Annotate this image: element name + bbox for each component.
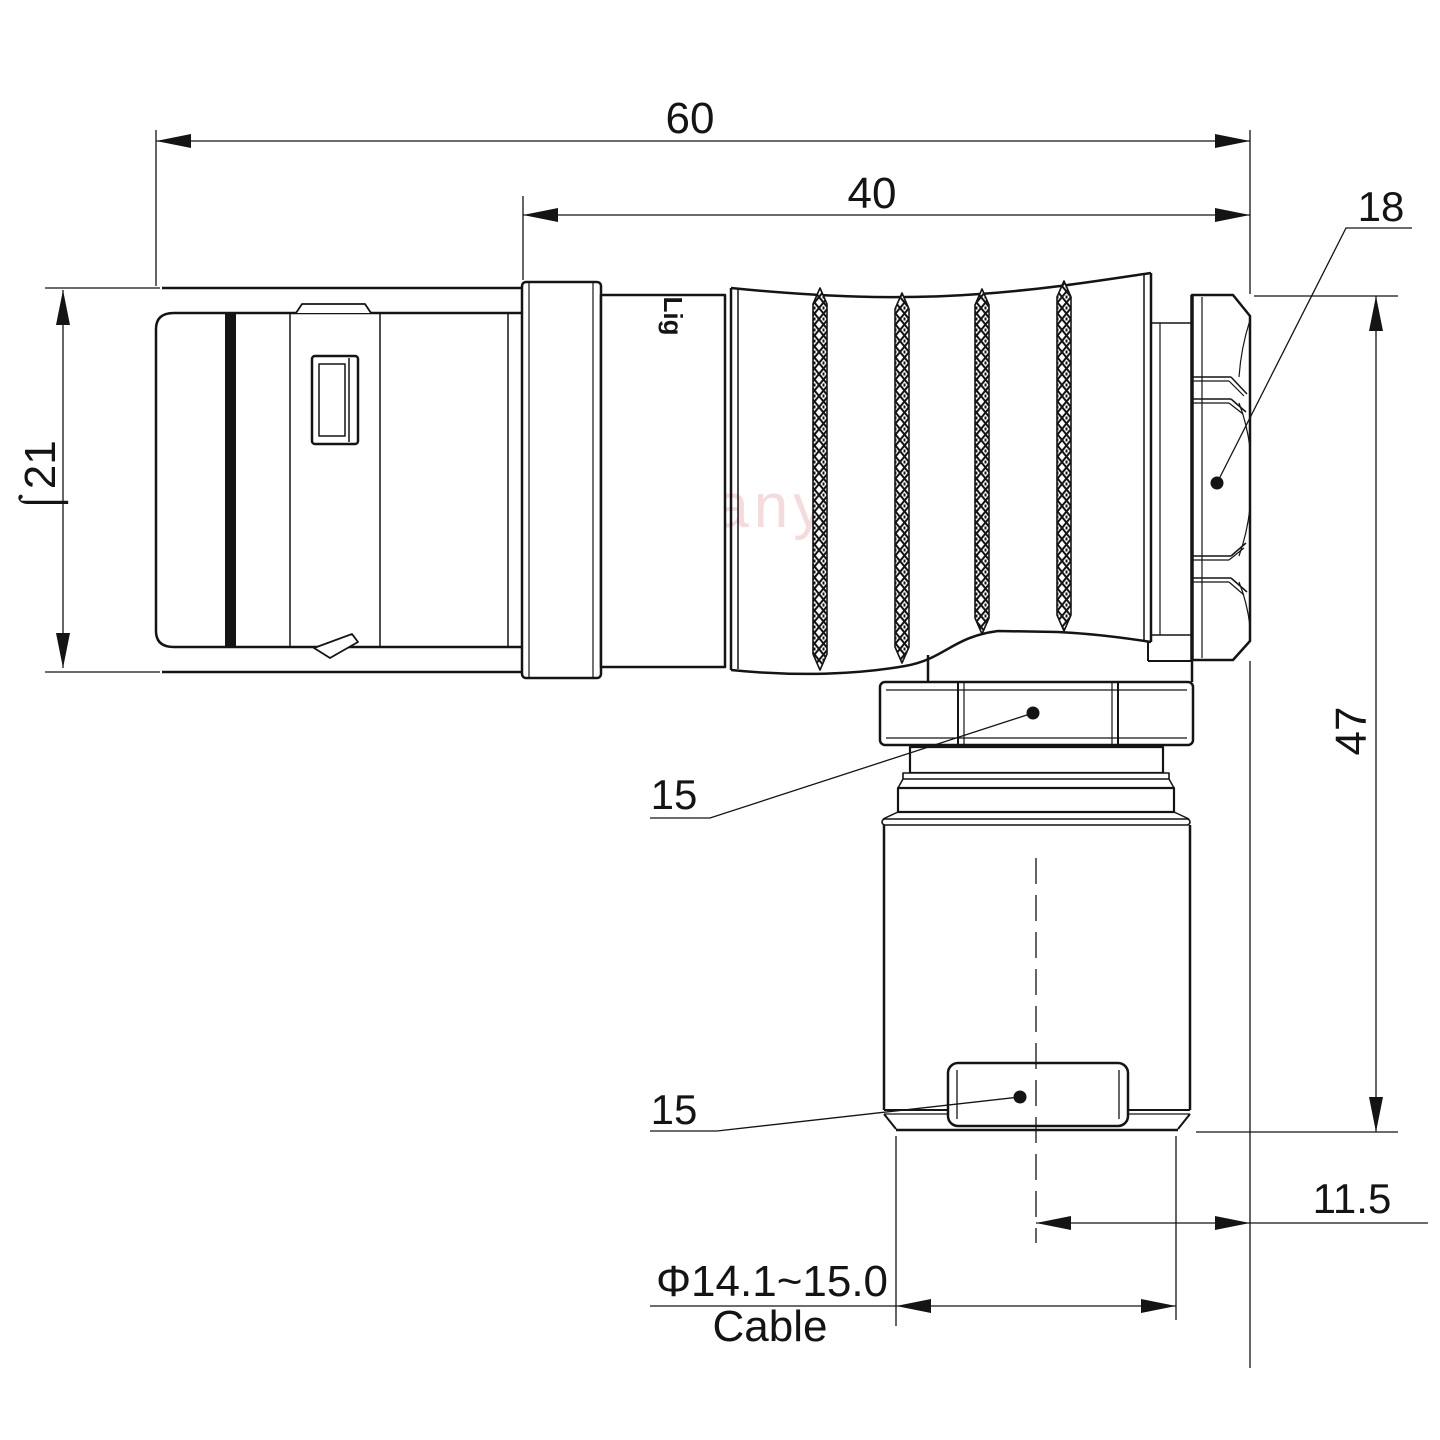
back-nut <box>1192 295 1250 660</box>
strain-relief-rings <box>882 747 1190 825</box>
dim-label-15-lower: 15 <box>651 1086 698 1133</box>
dim-label-cable: Cable <box>713 1302 828 1351</box>
knurl-strip <box>895 293 909 663</box>
dim-label-cable-diameter: Φ14.1~15.0 <box>656 1257 888 1306</box>
connector-dimension-drawing: Lightany <box>0 0 1440 1440</box>
neck <box>1151 323 1192 635</box>
cable-bushing <box>884 825 1190 1130</box>
top-key-tab <box>296 304 371 313</box>
connector-side-view <box>156 273 1250 1243</box>
knurl-strip <box>975 289 989 634</box>
collar-ring <box>522 282 601 678</box>
leader-dot-18 <box>1211 477 1224 490</box>
technical-drawing-page: Lightany <box>0 0 1440 1440</box>
release-sleeve <box>156 288 523 672</box>
bushing-latch-cap <box>948 1063 1128 1126</box>
dim-label-18: 18 <box>1358 183 1405 230</box>
dim-label-11-5: 11.5 <box>1313 1175 1392 1222</box>
bottom-latch-tab <box>314 634 358 658</box>
dim-label-40: 40 <box>848 169 897 218</box>
leader-dot-15-lower <box>1014 1091 1027 1104</box>
knurl-strip <box>813 288 827 670</box>
dim-label-60: 60 <box>666 94 715 143</box>
dim-label-dia21: ⌠21 <box>16 440 68 516</box>
dim-label-47: 47 <box>1327 707 1376 756</box>
mid-shell-section <box>601 295 725 667</box>
knurl-strip <box>1057 281 1071 631</box>
brand-stamp-text: Lig <box>658 297 688 336</box>
leader-dot-15-upper <box>1027 707 1040 720</box>
dim-label-15-upper: 15 <box>651 771 698 818</box>
color-band <box>225 313 236 647</box>
elbow-junction <box>928 642 1192 682</box>
dimension-labels: 60 40 18 ⌠21 47 15 15 11.5 Φ14.1~15.0 Ca… <box>16 94 1404 1351</box>
